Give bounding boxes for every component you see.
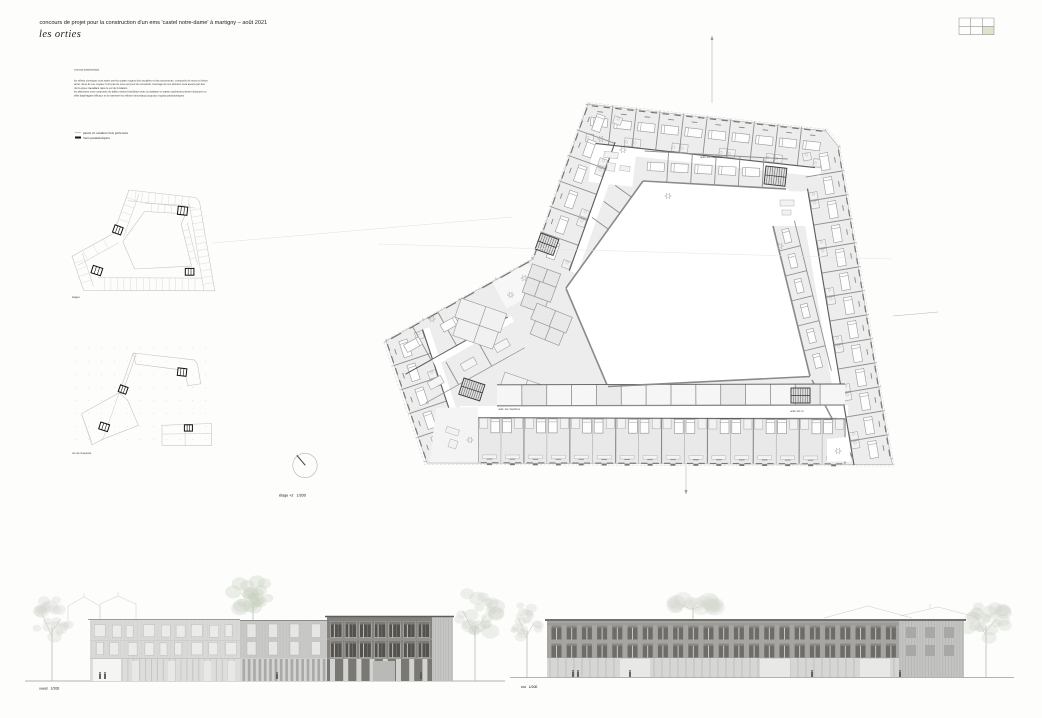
svg-text:micro-pieux travaillant dans l: micro-pieux travaillant dans le sol de f… (74, 87, 128, 90)
svg-text:concept parasismique: concept parasismique (74, 69, 100, 72)
svg-text:étage +2 1/200: étage +2 1/200 (279, 494, 306, 498)
svg-text:rez-de-chaussée: rez-de-chaussée (72, 452, 92, 455)
svg-text:les orties: les orties (39, 29, 81, 40)
svg-text:étages: étages (72, 296, 80, 299)
svg-text:concours de projet pour la con: concours de projet pour la construction … (40, 19, 268, 26)
svg-text:les planchers sont composés de: les planchers sont composés de dalles mi… (74, 91, 207, 94)
svg-text:unité 1/2 chambres: unité 1/2 chambres (700, 156, 723, 159)
svg-text:effet diaphragme efficace et d: effet diaphragme efficace et de ramener … (74, 95, 185, 98)
svg-text:parois en ossature bois porteu: parois en ossature bois porteuses (83, 131, 129, 135)
svg-text:unité 1/2 chambres: unité 1/2 chambres (498, 408, 521, 411)
svg-text:les efforts sismiques sont rep: les efforts sismiques sont repris par le… (74, 79, 208, 82)
svg-text:murs parasismiques: murs parasismiques (83, 136, 110, 140)
svg-text:est 1/200: est 1/200 (521, 685, 537, 689)
svg-text:armé. deux de ces noyaux n'ont: armé. deux de ces noyaux n'ont pas de so… (74, 83, 206, 86)
svg-text:ouest 1/200: ouest 1/200 (39, 687, 59, 691)
svg-text:unité 1/2 ch.: unité 1/2 ch. (790, 410, 804, 413)
